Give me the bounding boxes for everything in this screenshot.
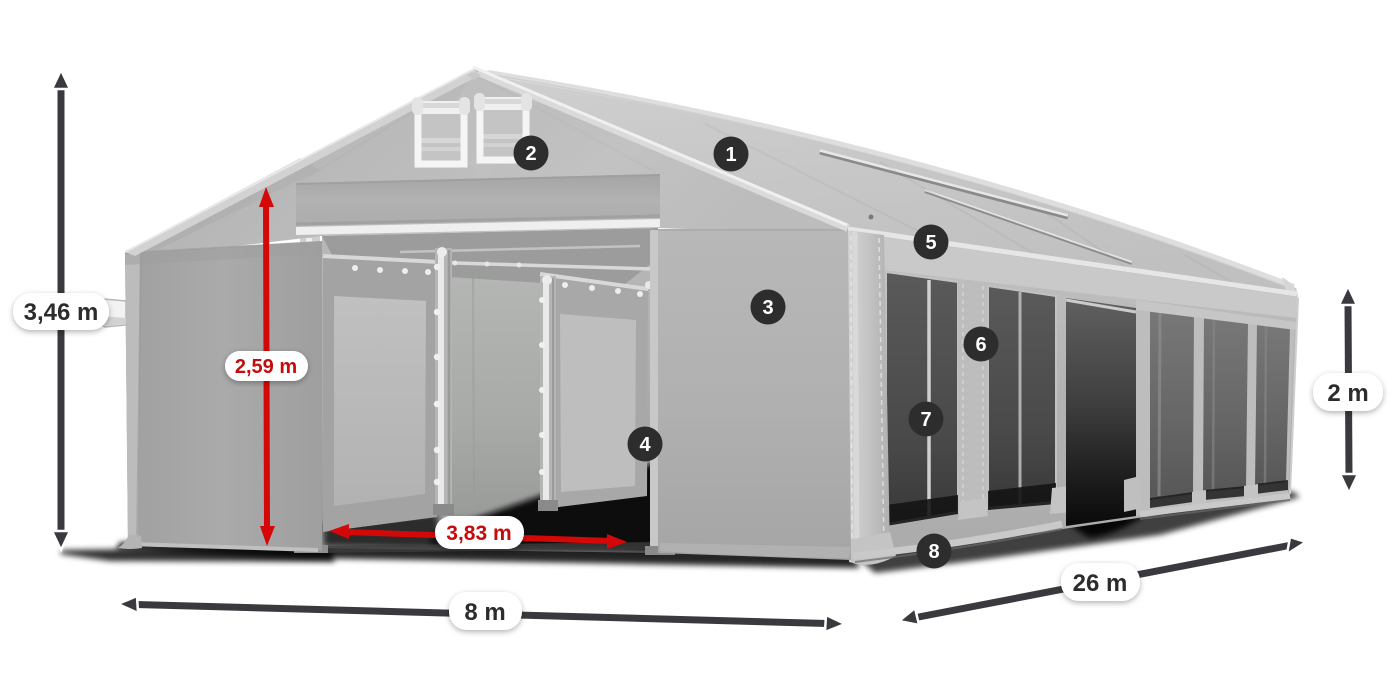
svg-text:2: 2 <box>525 143 536 165</box>
svg-text:6: 6 <box>975 334 986 356</box>
svg-text:3,83 m: 3,83 m <box>446 522 511 545</box>
svg-text:26 m: 26 m <box>1073 570 1128 597</box>
svg-text:8 m: 8 m <box>464 599 505 626</box>
svg-text:7: 7 <box>920 409 931 431</box>
svg-text:8: 8 <box>928 541 939 563</box>
svg-text:4: 4 <box>639 434 651 456</box>
svg-text:2,59 m: 2,59 m <box>235 356 297 378</box>
svg-text:3: 3 <box>762 297 773 319</box>
svg-text:1: 1 <box>725 144 736 166</box>
svg-text:2 m: 2 m <box>1327 380 1368 407</box>
svg-text:5: 5 <box>925 232 936 254</box>
svg-text:3,46 m: 3,46 m <box>24 299 99 326</box>
